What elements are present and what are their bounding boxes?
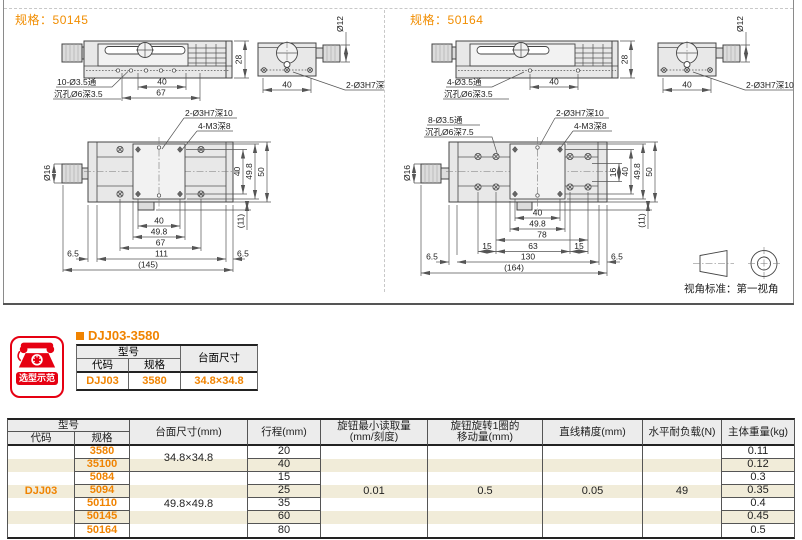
dim-40: 40	[682, 80, 692, 90]
spec-cell: 50110	[75, 498, 130, 511]
weight-cell: 0.4	[722, 498, 794, 511]
per-turn-cell: 0.5	[428, 446, 543, 537]
end-view-50145: Ø12 40 2-Ø3H7深10	[258, 16, 384, 93]
telephone-icon	[16, 341, 58, 371]
top-view-50164: Ø16 8-Ø3.5通 沉孔Ø6深7.5 2-Ø3H7深10 4-M3深8	[402, 108, 658, 276]
ex-header-surface: 台面尺寸	[181, 346, 257, 373]
example-title: DJJ03-3580	[76, 328, 160, 343]
ex-header-model: 型号	[77, 346, 181, 359]
label-counterbore: 沉孔Ø6深3.5	[444, 89, 493, 99]
weight-cell: 0.11	[722, 446, 794, 459]
dim-28: 28	[234, 55, 244, 65]
ex-spec-value: 3580	[129, 373, 181, 389]
dim-b130: 130	[521, 252, 535, 262]
label-pin-holes: 2-Ø3H7深10	[185, 108, 233, 118]
ex-code-value: DJJ03	[77, 373, 129, 389]
dim-b67: 67	[156, 238, 166, 248]
dim-v40: 40	[620, 167, 630, 177]
label-counterbore: 沉孔Ø6深7.5	[425, 127, 474, 137]
min-reading-cell: 0.01	[321, 446, 428, 537]
ex-header-spec: 规格	[129, 359, 181, 373]
dim-28: 28	[620, 55, 630, 65]
spec-cell: 5094	[75, 485, 130, 498]
dim-dia16: Ø16	[402, 165, 412, 181]
spec-table: 型号 代码 规格 台面尺寸(mm) 行程(mm) 旋钮最小读取量 (mm/刻度)…	[7, 418, 795, 539]
dim-b49: 49.8	[529, 219, 546, 229]
label-through-holes: 8-Ø3.5通	[428, 115, 463, 125]
ex-header-code: 代码	[77, 359, 129, 373]
dim-b40: 40	[533, 208, 543, 218]
surface-cell: 34.8×34.8	[130, 446, 248, 472]
travel-cell: 15	[248, 472, 321, 485]
spec-cell: 50145	[75, 511, 130, 524]
travel-cell: 80	[248, 524, 321, 537]
ex-surface-value: 34.8×34.8	[181, 373, 257, 389]
travel-cell: 25	[248, 485, 321, 498]
badge-label: 选型示范	[16, 372, 58, 385]
weight-cell: 0.12	[722, 459, 794, 472]
top-view-50145: Ø16 2-Ø3H7深10 4-M3深8 40 49.	[42, 108, 271, 272]
dim-total: (164)	[504, 263, 524, 273]
header-spec: 规格	[75, 432, 130, 446]
dim-v16: 16	[608, 168, 618, 178]
surface-cell: 49.8×49.8	[130, 472, 248, 537]
header-accuracy: 直线精度(mm)	[543, 420, 643, 446]
dim-v40: 40	[232, 167, 242, 177]
dim-dia12: Ø12	[335, 16, 345, 32]
header-load: 水平耐负载(N)	[643, 420, 722, 446]
header-per-turn-line2: 移动量(mm)	[457, 432, 513, 443]
dim-b15-left: 15	[482, 241, 492, 251]
dim-b49: 49.8	[151, 227, 168, 237]
spec-cell: 50164	[75, 524, 130, 537]
dim-b15-right: 15	[574, 241, 584, 251]
drawing-50145: 28 10-Ø3.5通 沉孔Ø6深3.5 40 67	[4, 8, 384, 305]
header-surface: 台面尺寸(mm)	[130, 420, 248, 446]
label-through-holes: 10-Ø3.5通	[57, 77, 97, 87]
side-view-50164: 28 4-Ø3.5通 沉孔Ø6深3.5 40	[432, 41, 635, 99]
dim-b65-left: 6.5	[67, 249, 79, 259]
label-tapped-holes: 4-M3深8	[198, 121, 231, 131]
example-table: 型号 台面尺寸 代码 规格 DJJ03 3580 34.8×34.8	[76, 344, 258, 391]
catalog-page: 规格：50145 规格：50164	[0, 0, 802, 540]
header-travel: 行程(mm)	[248, 420, 321, 446]
travel-cell: 60	[248, 511, 321, 524]
header-per-turn: 旋钮旋转1圈的 移动量(mm)	[428, 420, 543, 446]
dim-40: 40	[157, 77, 167, 87]
view-standard-note: 视角标准：第一视角	[684, 282, 779, 295]
spec-cell: 35100	[75, 459, 130, 472]
dim-b78: 78	[537, 230, 547, 240]
label-pin-holes: 2-Ø3H7深10	[746, 80, 794, 90]
header-min-reading-line2: (mm/刻度)	[350, 432, 398, 443]
dim-67: 67	[156, 88, 166, 98]
weight-cell: 0.35	[722, 485, 794, 498]
header-model: 型号	[8, 420, 130, 432]
dim-b65-right: 6.5	[237, 249, 249, 259]
dim-b40: 40	[154, 216, 164, 226]
dim-v50: 50	[256, 167, 266, 177]
dim-v11: (11)	[236, 214, 246, 229]
dim-dia16: Ø16	[42, 165, 52, 181]
dim-dia12: Ø12	[735, 16, 745, 32]
label-pin-holes: 2-Ø3H7深10	[346, 80, 384, 90]
dim-40: 40	[549, 77, 559, 87]
selection-example-badge: 选型示范	[10, 336, 64, 398]
dim-v49: 49.8	[632, 163, 642, 180]
dim-b65-right: 6.5	[611, 252, 623, 262]
accuracy-cell: 0.05	[543, 446, 643, 537]
dim-b111: 111	[155, 249, 168, 259]
label-tapped-holes: 4-M3深8	[574, 121, 607, 131]
header-weight: 主体重量(kg)	[722, 420, 794, 446]
dim-total: (145)	[138, 260, 158, 270]
load-cell: 49	[643, 446, 722, 537]
dim-b65-left: 6.5	[426, 252, 438, 262]
dim-v49: 49.8	[244, 163, 254, 180]
square-bullet-icon	[76, 332, 84, 340]
travel-cell: 20	[248, 446, 321, 459]
dim-v50: 50	[644, 167, 654, 177]
drawing-50164: 28 4-Ø3.5通 沉孔Ø6深3.5 40 Ø12	[384, 8, 794, 305]
dim-v11: (11)	[637, 213, 647, 228]
example-title-text: DJJ03-3580	[88, 328, 160, 343]
dim-b63: 63	[528, 241, 538, 251]
label-counterbore: 沉孔Ø6深3.5	[54, 89, 103, 99]
dim-40: 40	[282, 80, 292, 90]
label-pin-holes: 2-Ø3H7深10	[556, 108, 604, 118]
code-cell: DJJ03	[8, 446, 75, 537]
weight-cell: 0.45	[722, 511, 794, 524]
side-view-50145: 28 10-Ø3.5通 沉孔Ø6深3.5 40 67	[53, 41, 249, 101]
end-view-50164: Ø12 40 2-Ø3H7深10	[658, 16, 794, 93]
spec-cell: 5084	[75, 472, 130, 485]
weight-cell: 0.5	[722, 524, 794, 537]
travel-cell: 40	[248, 459, 321, 472]
spec-cell: 3580	[75, 446, 130, 459]
label-through-holes: 4-Ø3.5通	[447, 77, 482, 87]
header-min-reading: 旋钮最小读取量 (mm/刻度)	[321, 420, 428, 446]
weight-cell: 0.3	[722, 472, 794, 485]
header-code: 代码	[8, 432, 75, 446]
travel-cell: 35	[248, 498, 321, 511]
first-angle-symbol: 视角标准：第一视角	[684, 247, 780, 295]
